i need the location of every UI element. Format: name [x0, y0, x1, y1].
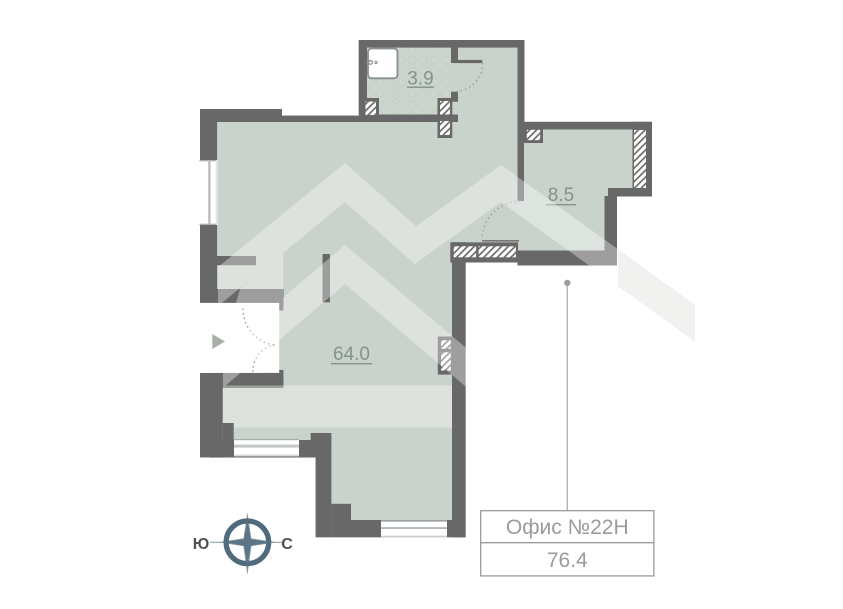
- svg-text:76.4: 76.4: [547, 549, 588, 572]
- svg-text:Ю: Ю: [193, 536, 210, 553]
- svg-text:3.9: 3.9: [407, 69, 433, 90]
- svg-text:Офис №22Н: Офис №22Н: [506, 516, 629, 539]
- svg-text:С: С: [281, 536, 293, 553]
- svg-text:64.0: 64.0: [333, 344, 370, 365]
